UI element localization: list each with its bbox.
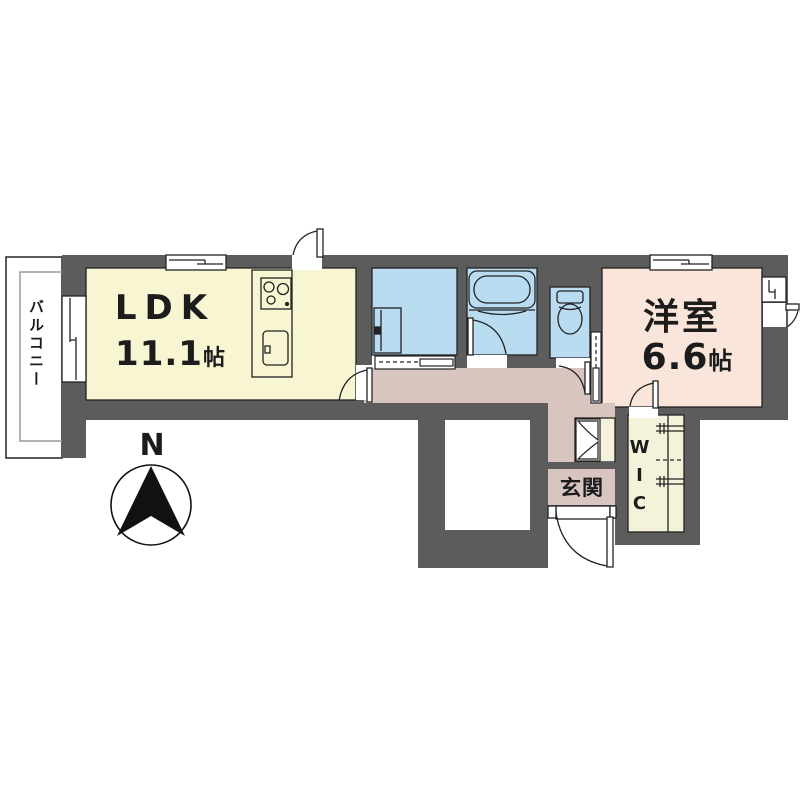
compass-north-label: N bbox=[126, 428, 178, 463]
ldk-top-window bbox=[166, 255, 226, 270]
western-size-value: 6.6 bbox=[642, 337, 709, 378]
wall-bath-toilet bbox=[537, 268, 550, 358]
wall-ldk-washroom bbox=[356, 255, 372, 365]
ldk-size-value: 11.1 bbox=[115, 334, 203, 374]
hallway-floor bbox=[364, 368, 591, 403]
west-room-top-window bbox=[650, 255, 712, 270]
western-room-label: 洋室 bbox=[600, 288, 764, 340]
ldk-room-size: 11.1帖 bbox=[85, 334, 255, 374]
wall-wic-left bbox=[615, 407, 628, 545]
room-washroom-floor bbox=[372, 268, 457, 355]
wic-label: WIC bbox=[629, 437, 650, 521]
ldk-size-unit: 帖 bbox=[203, 346, 225, 371]
west-room-exterior-door bbox=[763, 303, 799, 327]
hall-closet-bifold-door bbox=[576, 419, 600, 461]
wall-bottom-chunk bbox=[418, 530, 548, 568]
balcony-label: バルコニー bbox=[26, 299, 47, 439]
western-size-unit: 帖 bbox=[708, 347, 732, 375]
balcony-sliding-door bbox=[62, 296, 86, 382]
entrance-step-edge bbox=[548, 462, 615, 469]
room-toilet-floor bbox=[550, 287, 590, 358]
wall-washroom-bath bbox=[457, 268, 467, 355]
ldk-room-label: LDK bbox=[85, 288, 245, 328]
wall-wic-right bbox=[684, 407, 700, 545]
compass bbox=[111, 465, 191, 545]
ldk-service-door bbox=[292, 229, 323, 270]
wall-toilet-top bbox=[550, 268, 602, 287]
entrance-door bbox=[548, 506, 616, 567]
western-room-size: 6.6帖 bbox=[600, 337, 774, 378]
floor-plan-drawing bbox=[0, 0, 800, 800]
floor-plan: LDK 11.1帖 洋室 6.6帖 玄関 WIC バルコニー N bbox=[0, 0, 800, 800]
entrance-label: 玄関 bbox=[548, 472, 616, 502]
wall-wic-bottom bbox=[615, 532, 700, 545]
wall-entrance-left bbox=[530, 403, 548, 530]
west-room-side-window bbox=[762, 277, 786, 302]
washroom-sliding-door bbox=[375, 356, 455, 369]
